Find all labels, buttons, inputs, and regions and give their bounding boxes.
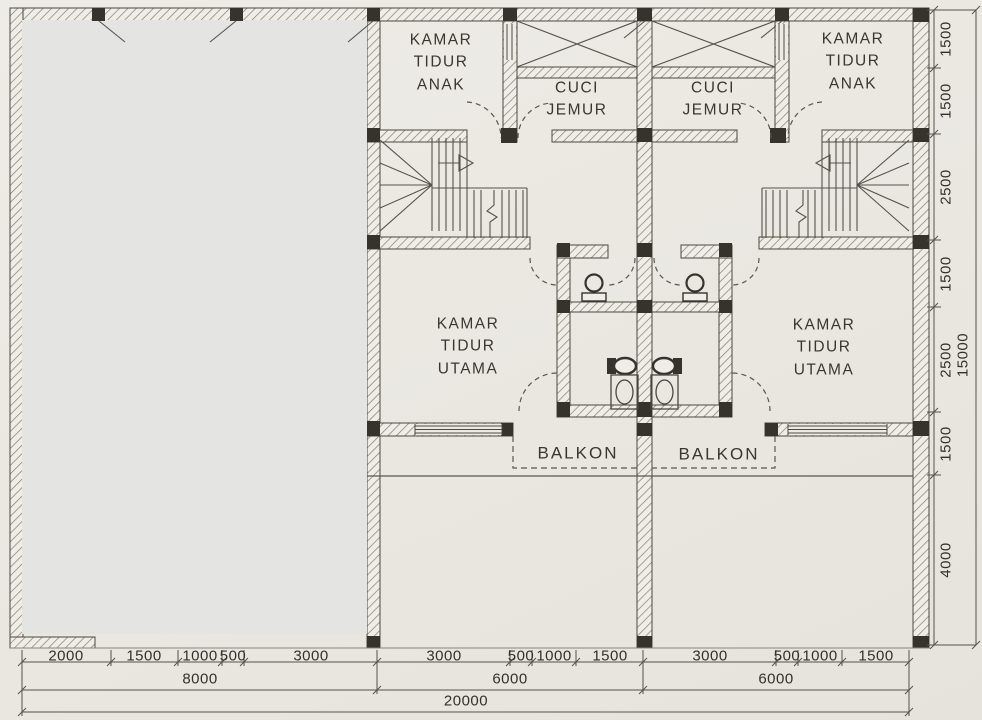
dim-bottom-500a: 500 <box>220 648 247 665</box>
fixtures-left-bath <box>582 275 638 410</box>
door-arc-anak-right <box>788 102 822 138</box>
door-arc-balcony-left <box>519 373 557 411</box>
room-label-kamar-tidur-utama-right: KAMAR TIDUR UTAMA <box>793 314 856 381</box>
dim-right-2500a: 2500 <box>938 169 955 204</box>
room-label-cuci-jemur-right: CUCI JEMUR <box>683 78 744 123</box>
wall-top <box>10 8 929 21</box>
basin-bowl-icon <box>656 380 673 404</box>
room-label-cuci-jemur-left: CUCI JEMUR <box>547 78 608 123</box>
wall-anak-bottom-left <box>367 130 467 142</box>
wall-party-center <box>637 21 652 648</box>
wall-left <box>10 8 23 648</box>
door-arc-bath-right <box>654 258 681 285</box>
dim-bottom-1500c: 1500 <box>858 648 893 665</box>
window-bedroom-left <box>415 424 502 435</box>
dim-bottom-3000b: 3000 <box>426 648 461 665</box>
void-x-brace-left <box>517 21 637 67</box>
dim-bottom-8000: 8000 <box>182 671 217 688</box>
window-divider-right <box>776 24 788 60</box>
stair-break-line <box>487 190 497 238</box>
dim-bottom-3000a: 3000 <box>293 648 328 665</box>
dim-right-15000: 15000 <box>955 333 972 377</box>
dim-right-1500c: 1500 <box>938 256 955 291</box>
dim-bottom-1000b: 1000 <box>536 648 571 665</box>
dim-right-1500d: 1500 <box>938 426 955 461</box>
toilet-top-icon <box>614 358 636 374</box>
wall-right <box>913 8 929 648</box>
dim-bottom-1500b: 1500 <box>592 648 627 665</box>
stair-left <box>380 138 527 238</box>
stair-right <box>762 138 909 238</box>
toilet-base-icon <box>683 293 707 301</box>
dim-bottom-1000c: 1000 <box>802 648 837 665</box>
wall-stair-bottom-right <box>759 237 913 249</box>
room-label-balkon-left: BALKON <box>538 442 619 467</box>
toilet-base-icon <box>582 293 606 301</box>
dim-bottom-6000a: 6000 <box>492 671 527 688</box>
wall-stair-bottom-left <box>367 237 530 249</box>
wall-bottom-left-stub <box>10 637 95 648</box>
window-bedroom-right <box>788 424 887 435</box>
dim-bottom-1000a: 1000 <box>182 648 217 665</box>
dim-right-2500b: 2500 <box>938 342 955 377</box>
wall-vertical-a <box>367 21 380 648</box>
wall-cuci-bottom-left <box>552 130 637 142</box>
toilet-bowl-icon <box>687 275 704 292</box>
dim-bottom-500b: 500 <box>508 648 535 665</box>
dim-bottom-2000: 2000 <box>48 648 83 665</box>
door-arc-bath-left <box>608 258 635 285</box>
void-x-brace-right <box>652 21 775 67</box>
door-arc-bedroom-right <box>732 258 759 285</box>
dim-right-4000: 4000 <box>938 542 955 577</box>
redaction-block <box>22 20 367 634</box>
floor-plan-page: KAMAR TIDUR ANAK KAMAR TIDUR ANAK CUCI J… <box>0 0 982 720</box>
dim-bottom-3000c: 3000 <box>692 648 727 665</box>
door-arc-anak-left <box>467 102 501 138</box>
dim-bottom-6000b: 6000 <box>758 671 793 688</box>
fixtures-right-bath <box>651 275 707 410</box>
dim-bottom-1500a: 1500 <box>126 648 161 665</box>
wall-cuci-bottom-right <box>652 130 737 142</box>
door-arc-bedroom-left <box>530 258 557 285</box>
wall-bath-side-left <box>557 245 570 417</box>
room-label-kamar-tidur-anak-left: KAMAR TIDUR ANAK <box>410 29 473 96</box>
door-arc-balcony-right <box>732 373 770 411</box>
stair-direction-arrow-left <box>438 155 473 171</box>
basin-bowl-icon <box>616 380 633 404</box>
toilet-bowl-icon <box>586 275 603 292</box>
dim-right-1500b: 1500 <box>938 83 955 118</box>
stair-direction-arrow-right <box>816 155 851 171</box>
room-label-kamar-tidur-utama-left: KAMAR TIDUR UTAMA <box>437 313 500 380</box>
room-label-kamar-tidur-anak-right: KAMAR TIDUR ANAK <box>822 28 885 95</box>
wall-bath-side-right <box>719 245 732 417</box>
dim-bottom-20000: 20000 <box>444 693 488 710</box>
toilet-top-icon <box>653 358 675 374</box>
room-label-balkon-right: BALKON <box>679 443 760 468</box>
stair-break-line <box>796 190 806 238</box>
window-divider-left <box>504 24 516 60</box>
dim-right-1500a: 1500 <box>938 21 955 56</box>
dim-bottom-500c: 500 <box>774 648 801 665</box>
